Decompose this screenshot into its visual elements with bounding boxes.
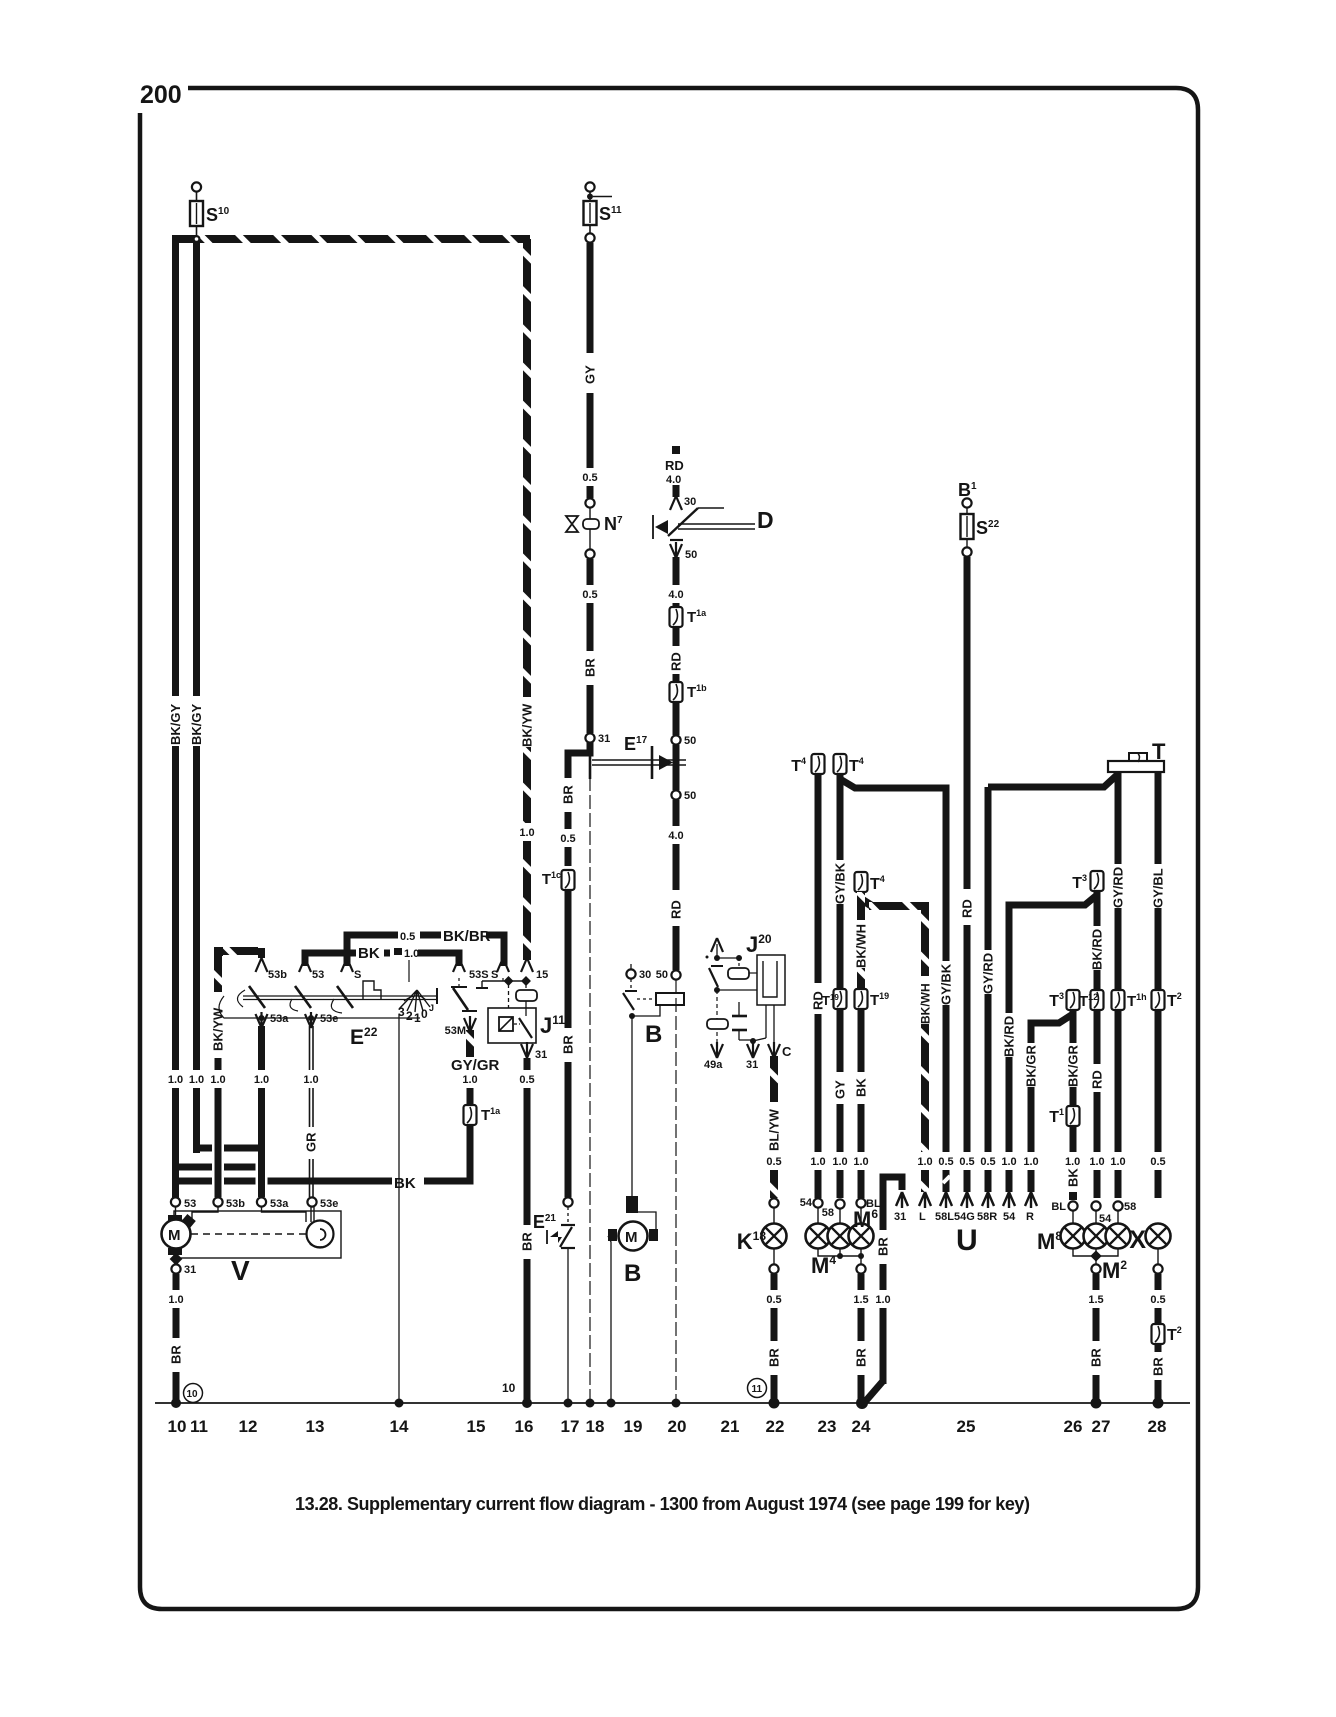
svg-text:31: 31 (598, 733, 610, 745)
svg-text:53: 53 (184, 1198, 196, 1210)
svg-text:BK/BR: BK/BR (443, 928, 491, 945)
svg-text:GY/BK: GY/BK (833, 862, 848, 904)
svg-text:50: 50 (656, 969, 668, 981)
svg-text:1.0: 1.0 (810, 1156, 825, 1168)
svg-text:BR: BR (854, 1348, 869, 1367)
svg-text:BR: BR (561, 1035, 576, 1054)
svg-text:10: 10 (187, 1389, 199, 1400)
svg-text:1.0: 1.0 (917, 1156, 932, 1168)
svg-text:BK/GY: BK/GY (189, 704, 204, 746)
svg-text:GY/BL: GY/BL (1151, 868, 1166, 908)
svg-text:GY/RD: GY/RD (981, 953, 996, 994)
svg-text:18: 18 (586, 1417, 605, 1436)
svg-text:53e: 53e (320, 1198, 338, 1210)
svg-text:1.0: 1.0 (303, 1074, 318, 1086)
svg-text:58R: 58R (977, 1211, 997, 1223)
svg-text:BK/GR: BK/GR (1024, 1045, 1039, 1088)
svg-text:BK/YW: BK/YW (520, 703, 535, 747)
svg-text:53b: 53b (268, 969, 287, 981)
svg-text:20: 20 (668, 1417, 687, 1436)
svg-text:D: D (757, 507, 774, 533)
svg-text:BL/YW: BL/YW (767, 1108, 782, 1151)
svg-text:0.5: 0.5 (560, 833, 575, 845)
svg-text:BL: BL (1051, 1201, 1066, 1213)
svg-text:31: 31 (535, 1049, 547, 1061)
svg-text:BR: BR (767, 1348, 782, 1367)
svg-text:RD: RD (1090, 1070, 1105, 1089)
svg-text:B: B (624, 1260, 641, 1287)
svg-text:0.5: 0.5 (1150, 1294, 1165, 1306)
svg-text:1.5: 1.5 (1088, 1294, 1103, 1306)
svg-text:50: 50 (685, 549, 697, 561)
svg-text:17: 17 (561, 1417, 580, 1436)
svg-text:53b: 53b (226, 1198, 245, 1210)
svg-text:V: V (231, 1255, 250, 1286)
svg-text:22: 22 (766, 1417, 785, 1436)
svg-text:28: 28 (1148, 1417, 1167, 1436)
svg-text:0.5: 0.5 (959, 1156, 974, 1168)
svg-text:1.0: 1.0 (832, 1156, 847, 1168)
svg-text:1.0: 1.0 (168, 1294, 183, 1306)
svg-text:0.5: 0.5 (582, 589, 597, 601)
svg-text:16: 16 (515, 1417, 534, 1436)
svg-text:1.0: 1.0 (462, 1074, 477, 1086)
svg-text:GY/BK: GY/BK (939, 963, 954, 1005)
svg-text:30: 30 (684, 496, 696, 508)
svg-text:1.0: 1.0 (189, 1074, 204, 1086)
svg-text:10: 10 (502, 1381, 516, 1395)
svg-text:1.0: 1.0 (404, 948, 419, 960)
svg-text:4.0: 4.0 (668, 830, 683, 842)
svg-text:0.5: 0.5 (980, 1156, 995, 1168)
svg-text:15: 15 (536, 969, 548, 981)
svg-text:R: R (1026, 1211, 1034, 1223)
svg-text:M: M (168, 1227, 181, 1244)
svg-text:1.0: 1.0 (1089, 1156, 1104, 1168)
svg-text:BR: BR (561, 785, 576, 804)
svg-text:25: 25 (957, 1417, 976, 1436)
svg-text:27: 27 (1092, 1417, 1111, 1436)
svg-text:BK/WH: BK/WH (854, 924, 869, 968)
svg-text:1.0: 1.0 (1065, 1156, 1080, 1168)
svg-text:0.5: 0.5 (766, 1156, 781, 1168)
svg-text:21: 21 (721, 1417, 740, 1436)
svg-text:BR: BR (1151, 1357, 1166, 1376)
svg-text:31: 31 (746, 1059, 758, 1071)
svg-text:1.0: 1.0 (875, 1294, 890, 1306)
svg-text:L: L (919, 1211, 926, 1223)
svg-text:BK/RD: BK/RD (1002, 1016, 1017, 1057)
svg-text:BR: BR (1089, 1348, 1104, 1367)
svg-text:26: 26 (1064, 1417, 1083, 1436)
svg-text:C: C (782, 1044, 792, 1059)
svg-text:BR: BR (876, 1237, 891, 1256)
svg-text:49a: 49a (704, 1059, 723, 1071)
svg-text:BK: BK (854, 1078, 869, 1097)
svg-text:50: 50 (684, 735, 696, 747)
svg-text:0.5: 0.5 (582, 472, 597, 484)
svg-text:RD: RD (665, 458, 684, 473)
svg-text:11: 11 (190, 1417, 208, 1436)
svg-text:0: 0 (421, 1007, 428, 1021)
svg-text:RD: RD (669, 652, 684, 671)
svg-text:T: T (1152, 739, 1166, 764)
svg-text:0.5: 0.5 (766, 1294, 781, 1306)
svg-text:B: B (645, 1021, 662, 1048)
svg-text:54: 54 (1003, 1211, 1016, 1223)
svg-text:1.0: 1.0 (254, 1074, 269, 1086)
svg-text:10: 10 (168, 1417, 187, 1436)
svg-text:RD: RD (960, 899, 975, 918)
svg-text:BK/GY: BK/GY (168, 704, 183, 746)
svg-text:12: 12 (239, 1417, 258, 1436)
svg-text:31: 31 (184, 1264, 196, 1276)
svg-text:13: 13 (306, 1417, 325, 1436)
svg-text:GR: GR (304, 1132, 319, 1152)
svg-text:4.0: 4.0 (668, 589, 683, 601)
svg-text:1.0: 1.0 (1023, 1156, 1038, 1168)
svg-text:GY/RD: GY/RD (1111, 867, 1126, 908)
svg-text:13.28. Supplementary current f: 13.28. Supplementary current flow diagra… (295, 1494, 1030, 1514)
svg-text:1.0: 1.0 (1110, 1156, 1125, 1168)
svg-text:58: 58 (1124, 1201, 1136, 1213)
svg-text:200: 200 (140, 81, 182, 109)
svg-text:0.5: 0.5 (1150, 1156, 1165, 1168)
svg-text:1.0: 1.0 (168, 1074, 183, 1086)
svg-text:RD: RD (669, 900, 684, 919)
svg-text:0.5: 0.5 (400, 931, 415, 943)
svg-text:53a: 53a (270, 1198, 289, 1210)
svg-text:53M: 53M (445, 1025, 466, 1037)
svg-text:54G: 54G (954, 1211, 975, 1223)
svg-text:BK/WH: BK/WH (919, 983, 933, 1024)
svg-text:50: 50 (684, 790, 696, 802)
svg-text:BR: BR (520, 1232, 535, 1251)
svg-text:24: 24 (852, 1417, 871, 1436)
svg-text:53S: 53S (469, 969, 489, 981)
svg-text:1.0: 1.0 (1001, 1156, 1016, 1168)
svg-text:U: U (956, 1224, 978, 1257)
svg-text:1.0: 1.0 (210, 1074, 225, 1086)
svg-text:S: S (491, 969, 498, 981)
svg-text:GY: GY (833, 1080, 848, 1099)
svg-text:BK/YW: BK/YW (211, 1007, 226, 1051)
svg-text:BK: BK (358, 945, 380, 962)
svg-text:1: 1 (414, 1011, 421, 1025)
svg-text:GY: GY (583, 365, 598, 384)
svg-text:58: 58 (822, 1207, 834, 1219)
svg-text:1.0: 1.0 (519, 827, 534, 839)
svg-text:53e: 53e (320, 1013, 338, 1025)
svg-text:53: 53 (312, 969, 324, 981)
svg-text:BK: BK (1066, 1168, 1081, 1187)
svg-text:BR: BR (583, 658, 598, 677)
svg-text:BK/RD: BK/RD (1090, 929, 1105, 970)
svg-text:19: 19 (624, 1417, 643, 1436)
svg-text:2: 2 (406, 1009, 413, 1023)
svg-text:1.5: 1.5 (853, 1294, 868, 1306)
svg-text:53a: 53a (270, 1013, 289, 1025)
svg-text:BK/GR: BK/GR (1066, 1045, 1081, 1088)
svg-text:54: 54 (800, 1197, 813, 1209)
svg-text:0.5: 0.5 (938, 1156, 953, 1168)
svg-text:0.5: 0.5 (519, 1074, 534, 1086)
svg-text:14: 14 (390, 1417, 409, 1436)
svg-text:J: J (429, 1003, 434, 1013)
svg-text:23: 23 (818, 1417, 837, 1436)
svg-text:M: M (625, 1229, 638, 1246)
svg-text:4.0: 4.0 (666, 474, 681, 486)
svg-text:31: 31 (894, 1211, 906, 1223)
svg-text:11: 11 (752, 1384, 763, 1395)
svg-text:1.0: 1.0 (853, 1156, 868, 1168)
svg-text:BR: BR (169, 1345, 184, 1364)
svg-text:15: 15 (467, 1417, 486, 1436)
svg-text:58L: 58L (935, 1211, 954, 1223)
svg-text:S: S (354, 969, 361, 981)
svg-text:X: X (1129, 1226, 1146, 1254)
svg-text:30: 30 (639, 969, 651, 981)
svg-text:BK: BK (394, 1175, 416, 1192)
